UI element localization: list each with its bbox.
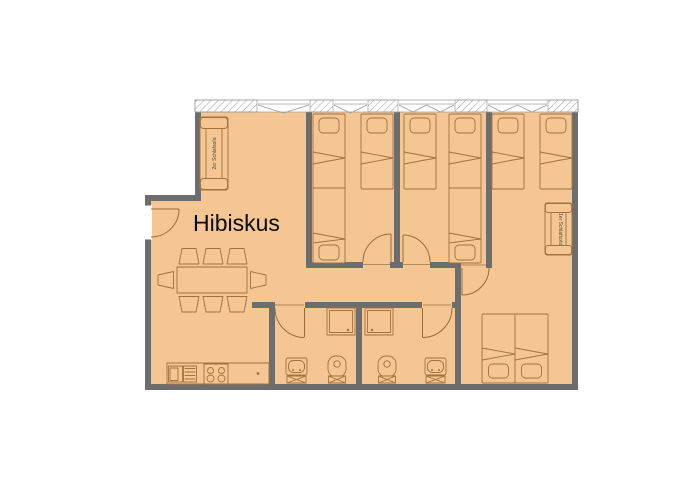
washbasin bbox=[286, 358, 307, 383]
chair bbox=[203, 297, 223, 313]
toilet bbox=[378, 356, 396, 383]
fridge-cabinet bbox=[169, 366, 183, 382]
masonry-hatch bbox=[310, 100, 333, 112]
wall-segment bbox=[572, 111, 578, 390]
floor-plan-page: 2er Schlafsofa Hibiskus bbox=[0, 0, 700, 500]
kitchen bbox=[167, 363, 269, 384]
chair bbox=[227, 249, 247, 265]
wall-segment bbox=[145, 240, 151, 390]
masonry-hatch bbox=[195, 100, 257, 112]
shower bbox=[327, 308, 355, 335]
wall-segment bbox=[390, 262, 403, 268]
floor-plan-svg: 2er Schlafsofa Hibiskus bbox=[0, 0, 700, 500]
single-bed bbox=[404, 114, 436, 189]
chair bbox=[179, 297, 199, 313]
dining-table bbox=[177, 267, 247, 293]
wall-segment bbox=[394, 111, 400, 268]
shelf-unit bbox=[184, 366, 197, 382]
single-bed bbox=[540, 114, 572, 189]
window-band bbox=[195, 100, 578, 113]
washbasin bbox=[425, 358, 446, 383]
stove bbox=[204, 364, 228, 384]
apartment-title: Hibiskus bbox=[193, 210, 280, 236]
single-bed bbox=[361, 114, 393, 189]
double-bed bbox=[482, 314, 548, 383]
sink-drain-dot bbox=[257, 372, 260, 375]
single-bed bbox=[313, 188, 345, 263]
masonry-hatch bbox=[455, 100, 487, 112]
chair bbox=[203, 249, 223, 265]
wall-segment bbox=[145, 195, 201, 201]
wall-segment bbox=[145, 201, 151, 205]
single-bed bbox=[492, 114, 524, 189]
masonry-hatch bbox=[548, 100, 578, 112]
chair bbox=[179, 249, 199, 265]
chair bbox=[158, 272, 174, 289]
masonry-hatch bbox=[368, 100, 398, 112]
wall-segment bbox=[356, 302, 362, 390]
armchair-bed-1er: 1er Schlafsofa bbox=[545, 203, 572, 255]
single-bed bbox=[313, 114, 345, 189]
shower bbox=[365, 308, 393, 335]
chair bbox=[251, 272, 267, 289]
toilet bbox=[328, 356, 346, 383]
wall-segment bbox=[269, 302, 275, 390]
single-bed bbox=[449, 114, 481, 189]
wall-segment bbox=[486, 111, 492, 268]
sofa-label: 2er Schlafsofa bbox=[212, 137, 218, 169]
single-bed bbox=[449, 188, 481, 263]
entrance-door-opening bbox=[144, 205, 152, 240]
armchair-label: 1er Schlafsofa bbox=[557, 213, 563, 245]
wall-segment bbox=[305, 302, 422, 308]
wall-segment bbox=[306, 111, 312, 268]
chair bbox=[227, 297, 247, 313]
wall-segment bbox=[455, 262, 461, 390]
sofa-bed-2er: 2er Schlafsofa bbox=[200, 117, 228, 190]
wall-segment bbox=[452, 302, 461, 308]
